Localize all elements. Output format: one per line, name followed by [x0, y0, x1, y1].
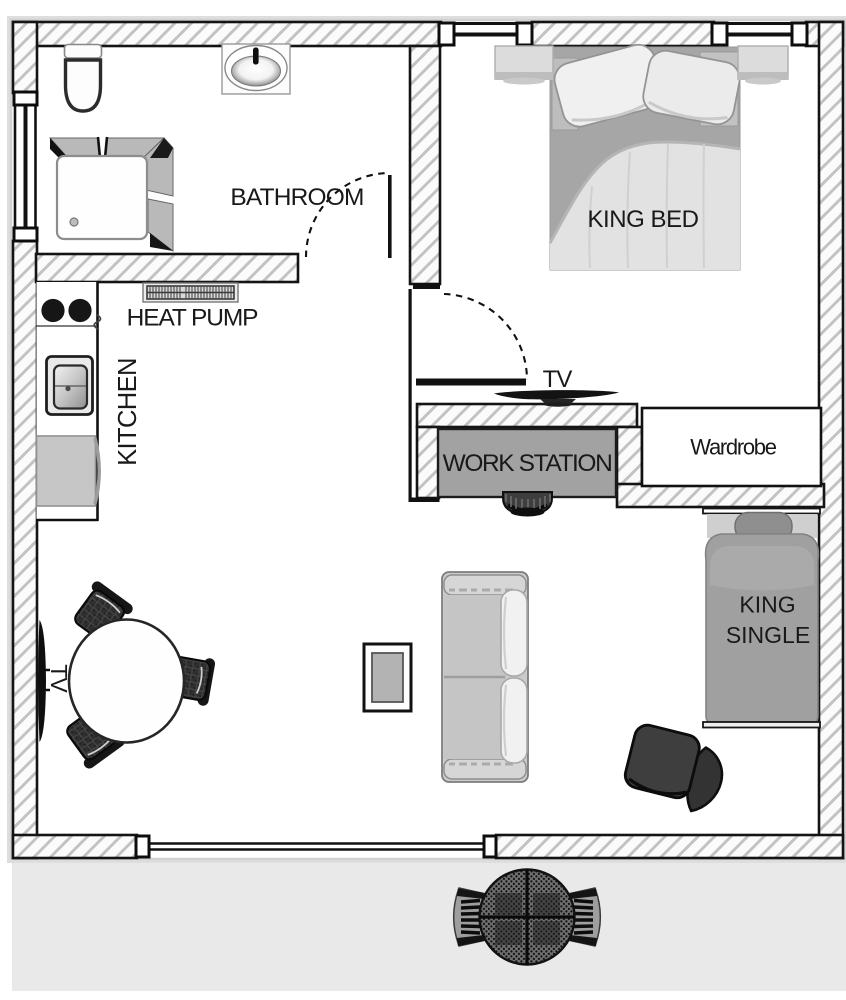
svg-text:BATHROOM: BATHROOM [230, 184, 363, 211]
svg-text:Wardrobe: Wardrobe [690, 435, 776, 460]
svg-text:HEAT PUMP: HEAT PUMP [127, 305, 259, 332]
svg-text:TV: TV [543, 366, 573, 393]
svg-text:SINGLE: SINGLE [726, 622, 810, 648]
svg-text:KING: KING [739, 592, 795, 618]
svg-text:TV: TV [46, 664, 72, 693]
svg-text:KITCHEN: KITCHEN [114, 358, 142, 466]
svg-text:WORK STATION: WORK STATION [443, 450, 612, 477]
svg-text:KING BED: KING BED [587, 206, 698, 233]
